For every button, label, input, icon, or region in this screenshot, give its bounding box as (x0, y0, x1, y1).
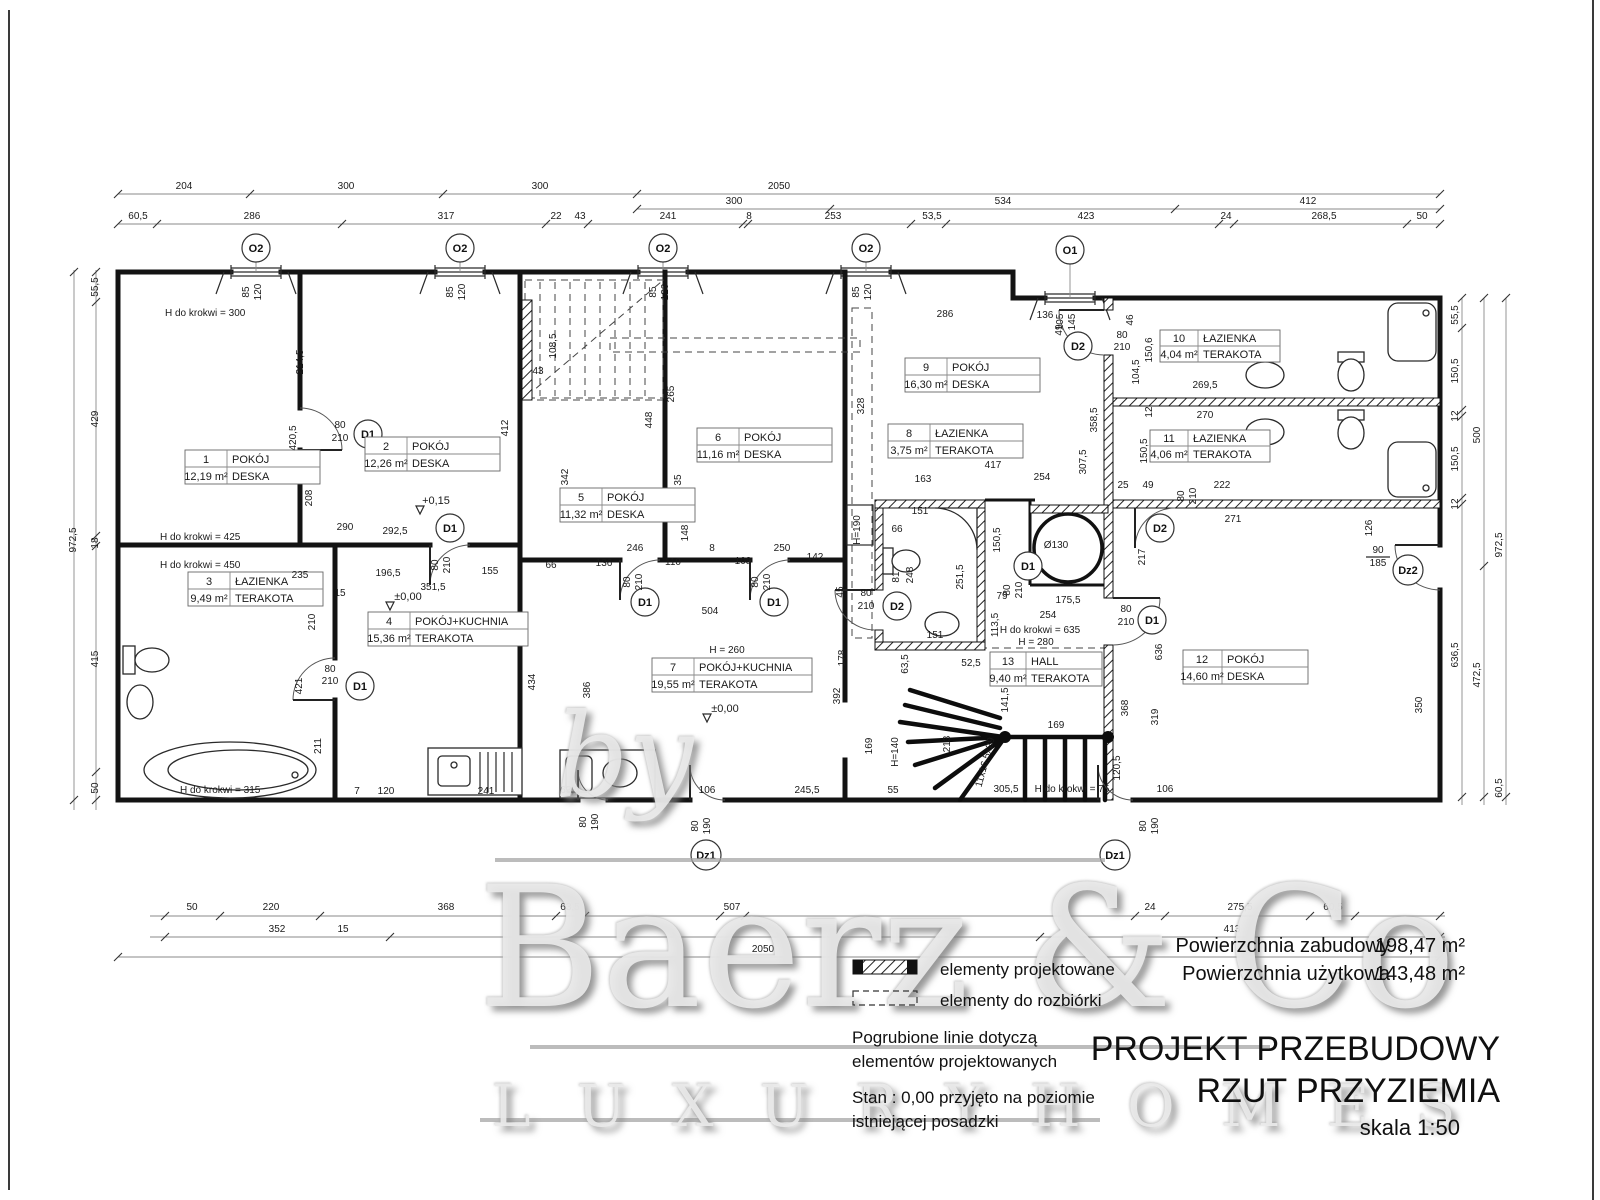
room-label-6: 6 POKÓJ 11,16 m² DESKA (697, 428, 832, 462)
room-floor: TERAKOTA (1031, 673, 1090, 685)
room-label-13: 13 HALL 9,40 m² TERAKOTA (989, 652, 1102, 686)
dim-label: 290 (337, 522, 354, 533)
dim-label: 142 (807, 552, 824, 563)
door-dz1: Dz1 80 190 (690, 765, 725, 870)
door-size: 80 (1138, 820, 1149, 832)
sink (1246, 362, 1284, 388)
dim-label: 136 (596, 558, 613, 569)
dim-label: 8 (709, 543, 715, 554)
dim-label: 448 (644, 411, 655, 428)
door-size: 210 (322, 676, 339, 687)
window-size: 85 (851, 286, 862, 298)
dim-label: 214,5 (295, 349, 306, 374)
interior-dimensions: H do krokwi = 300 214,5 420,5 208 290 H … (160, 308, 1425, 797)
dim-label: 220 (263, 902, 280, 913)
dim-label: 106 (699, 785, 716, 796)
room-floor: TERAKOTA (935, 445, 994, 457)
room-num: 12 (1196, 654, 1208, 666)
room-num: 7 (670, 662, 676, 674)
room-name: ŁAZIENKA (935, 428, 989, 440)
dim-label: 235 (292, 570, 309, 581)
room-num: 10 (1173, 333, 1185, 345)
room-num: 13 (1002, 656, 1014, 668)
room-label-12: 12 POKÓJ 14,60 m² DESKA (1180, 650, 1308, 684)
dim-label: 412 (500, 419, 511, 436)
toilet (123, 646, 169, 674)
dim-label: H do krokwi = 635 (1000, 625, 1081, 636)
dim-label: 420,5 (288, 425, 299, 450)
dim-label: 55,5 (90, 277, 101, 297)
dim-label: 251,5 (955, 564, 966, 589)
door-tag: D1 (1145, 615, 1159, 627)
dim-label: 18 (90, 537, 101, 549)
room-area: 4,06 m² (1150, 449, 1188, 461)
legend-note-level-1: Stan : 0,00 przyjęto na poziomie (852, 1088, 1095, 1108)
door-tag: D1 (353, 681, 367, 693)
dim-label: 15 (334, 588, 346, 599)
dim-label: 254 (1034, 472, 1051, 483)
dim-label: 246 (627, 543, 644, 554)
dim-label: 60,5 (1323, 902, 1343, 913)
dim-label: 421 (294, 677, 305, 694)
shower (1388, 303, 1436, 361)
door-dz2: Dz2 90 185 (1366, 545, 1440, 590)
dim-label: 300 (726, 196, 743, 207)
legend-symbols (850, 955, 930, 1015)
toilet (1338, 352, 1364, 391)
dim-label: 241 (478, 786, 495, 797)
room-floor: DESKA (744, 449, 782, 461)
dim-label: 208 (304, 489, 315, 506)
project-title-line2: RZUT PRZYZIEMIA (1060, 1072, 1500, 1111)
dim-label: 126 (1364, 519, 1375, 536)
window-o2-4: O2 85 120 (826, 234, 906, 300)
dim-label: 53,5 (922, 211, 942, 222)
dim-label: 417 (985, 460, 1002, 471)
dim-label: 66 (545, 560, 557, 571)
room-area: 12,19 m² (184, 471, 228, 483)
door-d1: D1 80 210 (1113, 598, 1166, 645)
room-floor: DESKA (232, 471, 270, 483)
door-tag: D2 (890, 601, 904, 613)
dim-label: 148 (680, 524, 691, 541)
room-label-8: 8 ŁAZIENKA 3,75 m² TERAKOTA (888, 424, 1023, 458)
dim-label: H do krokwi = 450 (160, 560, 241, 571)
dim-label: 141,5 (1000, 687, 1011, 712)
dim-label: 507 (724, 902, 741, 913)
room-area: 11,32 m² (560, 509, 603, 521)
toilet (1338, 410, 1364, 449)
door-size: 210 (332, 433, 349, 444)
door-tag: Dz1 (1105, 850, 1125, 862)
room-name: HALL (1031, 656, 1059, 668)
room-name: POKÓJ (952, 361, 989, 374)
dim-label: 155 (482, 566, 499, 577)
dim-label: H do krokwi = 315 (180, 785, 261, 796)
level-label: ±0,00 (711, 703, 738, 715)
room-area: 15,36 m² (367, 633, 411, 645)
dim-label: 108 (735, 556, 752, 567)
legend-note-bold-lines-2: elementów projektowanych (852, 1052, 1057, 1072)
door-d1: D1 80 210 (750, 560, 790, 616)
door-d1: D1 80 210 (1002, 552, 1042, 598)
door-size: 190 (1150, 817, 1161, 834)
door-d1: D1 80 210 (620, 560, 660, 616)
dim-label: 55,5 (1450, 305, 1461, 325)
dim-label: 307,5 (1078, 449, 1089, 474)
dim-label: 350 (1414, 696, 1425, 713)
room-name: ŁAZIENKA (1203, 333, 1257, 345)
room-label-7: 7 POKÓJ+KUCHNIA 19,55 m² TERAKOTA (651, 658, 812, 692)
dim-label: 52,5 (961, 658, 981, 669)
window-tag: O2 (656, 243, 671, 255)
window-o2-1: O2 85 120 (216, 234, 296, 300)
room-area: 3,75 m² (890, 445, 928, 457)
dim-label: 386 (582, 681, 593, 698)
room-area: 11,16 m² (697, 449, 740, 461)
dim-label: 169 (1048, 720, 1065, 731)
scale-label: skala 1:50 (1200, 1115, 1460, 1141)
window-tag: O2 (249, 243, 264, 255)
window-size: 85 (445, 286, 456, 298)
dim-label: 150,6 (1144, 337, 1155, 362)
door-size: 210 (1188, 487, 1199, 504)
dim-label: 434 (527, 673, 538, 690)
dim-label: 24 (1220, 211, 1232, 222)
dim-label: 63,5 (560, 902, 580, 913)
room-floor: DESKA (607, 509, 645, 521)
door-size: 80 (622, 576, 633, 588)
door-size: 90 (1372, 545, 1384, 556)
room-name: POKÓJ (412, 440, 449, 453)
window-size: 120 (863, 283, 874, 300)
room-name: ŁAZIENKA (1193, 433, 1247, 445)
dim-label: H=190 (852, 515, 863, 545)
room-label-9: 9 POKÓJ 16,30 m² DESKA (904, 358, 1040, 392)
room-label-2: 2 POKÓJ 12,26 m² DESKA (364, 437, 500, 471)
dim-label: 222 (1214, 480, 1231, 491)
sheet-edge-left (8, 10, 10, 1190)
dim-label: 500 (1472, 426, 1483, 443)
room-label-5: 5 POKÓJ 11,32 m² DESKA (560, 488, 695, 522)
dim-label: 15 (337, 924, 349, 935)
door-size: 185 (1370, 558, 1387, 569)
dim-label: 24 (1144, 902, 1156, 913)
door-tag: D2 (1153, 523, 1167, 535)
dim-label: 104,5 (1131, 359, 1142, 384)
room-floor: TERAKOTA (415, 633, 474, 645)
dim-label: 12 (1144, 406, 1155, 418)
room-num: 6 (715, 432, 721, 444)
door-d2: D2 80 210 (1135, 487, 1199, 548)
dim-label: 211 (313, 738, 324, 754)
dim-label: 254 (1040, 610, 1057, 621)
dim-label: 972,5 (1494, 532, 1505, 557)
dim-label: 50 (186, 902, 198, 913)
dim-label: 319 (1150, 708, 1161, 725)
door-size: 80 (334, 420, 346, 431)
dim-label: 292,5 (382, 526, 407, 537)
dim-label: 12 (1450, 410, 1461, 422)
dim-label: 275,5 (1227, 902, 1252, 913)
dim-label: 169 (864, 737, 875, 754)
legend-symbol-cap (907, 960, 917, 974)
dim-label: 49 (1142, 480, 1154, 491)
door-size: 190 (702, 817, 713, 834)
dim-label: 342 (560, 468, 571, 485)
dim-label: 110 (665, 557, 681, 568)
area-usable-value: 143,48 m² (1330, 963, 1465, 986)
room-floor: TERAKOTA (1203, 349, 1262, 361)
room-name: POKÓJ+KUCHNIA (699, 661, 793, 674)
dim-label: 150,5 (1450, 446, 1461, 471)
dim-label: 63,5 (900, 654, 911, 674)
dim-label: 300 (532, 181, 549, 192)
room-name: POKÓJ (607, 491, 644, 504)
dim-label: 412 (1300, 196, 1317, 207)
kitchen-counter (428, 748, 522, 795)
door-d1: D1 80 210 (293, 658, 374, 700)
dim-label: 150,5 (1139, 438, 1150, 463)
room-floor: DESKA (952, 379, 990, 391)
window-size: 120 (253, 283, 264, 300)
dim-label: 7 (354, 786, 360, 797)
room-name: POKÓJ (744, 431, 781, 444)
dim-label: Ø130 (1044, 540, 1069, 551)
dim-label: H do krokwi = 300 (165, 308, 246, 319)
dim-label: 35 (673, 474, 684, 486)
door-tag: Dz1 (696, 850, 716, 862)
door-size: 210 (634, 573, 645, 590)
dim-label: 12 (1450, 498, 1461, 510)
door-size: 190 (590, 813, 601, 830)
door-tag: Dz2 (1398, 565, 1418, 577)
room-area: 9,40 m² (989, 673, 1027, 685)
window-o2-2: O2 85 120 (420, 234, 500, 300)
room-floor: DESKA (412, 458, 450, 470)
dim-label: 150,5 (1450, 358, 1461, 383)
door-size: 210 (1118, 617, 1135, 628)
door-d1: D1 80 210 (430, 514, 470, 585)
room-area: 4,04 m² (1160, 349, 1198, 361)
dim-label: 46 (1125, 314, 1136, 326)
dim-label: H = 280 (1018, 637, 1054, 648)
sink (127, 685, 153, 719)
room-label-4: 4 POKÓJ+KUCHNIA 15,36 m² TERAKOTA (367, 612, 528, 646)
door-size: 80 (578, 816, 589, 828)
room-area: 12,26 m² (364, 458, 408, 470)
dim-label: 108,5 (548, 333, 559, 358)
dim-label: 210 (307, 613, 318, 630)
door-size: 80 (324, 664, 336, 675)
room-num: 8 (906, 428, 912, 440)
dim-label: 151 (927, 630, 944, 641)
dim-label: 60,5 (1494, 778, 1505, 798)
dim-label: 8 (746, 211, 752, 222)
room-num: 4 (386, 616, 392, 628)
room-label-11: 11 ŁAZIENKA 4,06 m² TERAKOTA (1150, 430, 1270, 462)
room-floor: TERAKOTA (699, 679, 758, 691)
legend-symbol-cap (853, 960, 863, 974)
dim-label: 2050 (752, 944, 775, 955)
door-size: 210 (858, 601, 875, 612)
dim-label: 150,5 (992, 527, 1003, 552)
dim-label: 317 (438, 211, 455, 222)
dim-label: 43 (532, 366, 544, 377)
room-num: 9 (923, 362, 929, 374)
dim-label: 472,5 (1472, 662, 1483, 687)
dim-label: 175,5 (1055, 595, 1080, 606)
dim-label: 423 (1078, 211, 1095, 222)
room-num: 1 (203, 454, 209, 466)
dim-label: 972,5 (68, 527, 79, 552)
door-size: 80 (690, 820, 701, 832)
room-name: POKÓJ+KUCHNIA (415, 615, 509, 628)
room-num: 5 (578, 492, 584, 504)
dim-label: 504 (702, 606, 719, 617)
dim-label: 151 (912, 506, 929, 517)
dim-label: 49 (1054, 324, 1065, 336)
window-tag: O2 (859, 243, 874, 255)
room-floor: TERAKOTA (235, 593, 294, 605)
dim-label: 45 (835, 586, 846, 598)
dim-label: 368 (438, 902, 455, 913)
dim-label: 217 (1137, 548, 1148, 565)
dim-label: 413 (1224, 924, 1241, 935)
door-tag: D1 (767, 597, 781, 609)
dim-label: 328 (856, 397, 867, 414)
room-floor: DESKA (1227, 671, 1265, 683)
dim-label: 253 (825, 211, 842, 222)
dim-label: 270 (1197, 410, 1214, 421)
dim-label: 300 (338, 181, 355, 192)
dim-label: 245,5 (794, 785, 819, 796)
dim-label: 286 (937, 309, 954, 320)
floor-plan-sheet: 204 300 300 2050 300 534 412 60,5 286 31… (0, 0, 1600, 1200)
door-size: 80 (1176, 490, 1187, 502)
dim-label: 55 (887, 785, 899, 796)
dim-label: 178 (837, 649, 848, 666)
room-label-10: 10 ŁAZIENKA 4,04 m² TERAKOTA (1160, 330, 1280, 362)
dim-label: 63,5 (560, 785, 580, 796)
dim-label: 429 (90, 410, 101, 427)
door-size: 80 (860, 588, 872, 599)
dim-label: 392 (832, 687, 843, 704)
door-size: 210 (1014, 581, 1025, 598)
dim-label: H=140 (890, 737, 901, 767)
area-built-value: 198,47 m² (1330, 935, 1465, 958)
room-name: POKÓJ (1227, 653, 1264, 666)
door-size: 210 (442, 556, 453, 573)
dim-label: 241 (660, 211, 677, 222)
window-tag: O1 (1063, 245, 1078, 257)
legend-item-projected: elementy projektowane (940, 960, 1115, 980)
dim-label: 79 (996, 591, 1008, 602)
dim-label: 351,5 (420, 582, 445, 593)
dim-label: 50 (90, 782, 101, 794)
dim-label: 271 (1225, 514, 1242, 525)
floor-plan-drawing: 204 300 300 2050 300 534 412 60,5 286 31… (0, 0, 1600, 1200)
dim-label: H do krokwi = 425 (160, 532, 241, 543)
window-size: 145 (1067, 313, 1078, 330)
window-size: 120 (457, 283, 468, 300)
dim-label: 43 (574, 211, 586, 222)
shower (1388, 442, 1436, 497)
dim-label: 352 (269, 924, 286, 935)
door-size: 210 (1114, 342, 1131, 353)
dim-label: 163 (915, 474, 932, 485)
window-size: 85 (241, 286, 252, 298)
door-tag: D1 (1021, 561, 1035, 573)
dim-label: 50 (1416, 211, 1428, 222)
dim-label: 22 (550, 211, 562, 222)
dim-label: 269,5 (1192, 380, 1217, 391)
dim-label: 120 (378, 786, 395, 797)
dim-label: H = 260 (709, 645, 745, 656)
dim-label: 60,5 (128, 211, 148, 222)
room-floor: TERAKOTA (1193, 449, 1252, 461)
dim-label: 250 (774, 543, 791, 554)
door-size: 80 (430, 559, 441, 571)
legend-note-bold-lines-1: Pogrubione linie dotyczą (852, 1028, 1037, 1048)
room-label-1: 1 POKÓJ 12,19 m² DESKA (184, 450, 320, 484)
project-title-line1: PROJEKT PRZEBUDOWY (1060, 1030, 1500, 1069)
dim-label: 265 (666, 385, 677, 402)
dim-label: 248 (905, 566, 916, 583)
room-name: ŁAZIENKA (235, 576, 289, 588)
dim-label: 2050 (768, 181, 791, 192)
room-num: 11 (1163, 433, 1174, 445)
dim-label: 368 (1120, 699, 1131, 716)
room-num: 3 (206, 576, 212, 588)
dim-label: 636 (1154, 643, 1165, 660)
dim-label: H do krokwi = 75 (1035, 784, 1110, 795)
level-label: +0,15 (422, 495, 450, 507)
door-tag: D1 (638, 597, 652, 609)
room-num: 2 (383, 441, 389, 453)
legend-note-level-2: istniejącej posadzki (852, 1112, 998, 1132)
room-area: 19,55 m² (651, 679, 695, 691)
dim-label: 66 (891, 524, 903, 535)
dim-label: 636,5 (1450, 642, 1461, 667)
room-area: 14,60 m² (1180, 671, 1224, 683)
sheet-edge-right (1592, 0, 1594, 1200)
dim-label: 213 (942, 735, 953, 752)
level-label: ±0,00 (394, 591, 421, 603)
dim-label: 305,5 (993, 784, 1018, 795)
dim-label: 286 (244, 211, 261, 222)
room-name: POKÓJ (232, 453, 269, 466)
room-area: 9,49 m² (190, 593, 228, 605)
dim-label: 534 (995, 196, 1012, 207)
dim-label: 415 (90, 650, 101, 667)
room-area: 16,30 m² (904, 379, 948, 391)
door-tag: D2 (1071, 341, 1085, 353)
door-size: 80 (750, 576, 761, 588)
dim-label: 268,5 (1311, 211, 1336, 222)
dim-label: 136 (1037, 310, 1054, 321)
legend-symbol-demolition (853, 991, 917, 1005)
dim-label: 204 (176, 181, 193, 192)
door-size: 80 (1120, 604, 1132, 615)
door-tag: D1 (443, 523, 457, 535)
door-size: 210 (762, 573, 773, 590)
dim-label: 120,5 (1112, 755, 1123, 780)
door-size: 80 (1116, 330, 1128, 341)
dim-label: 196,5 (375, 568, 400, 579)
legend-item-demolition: elementy do rozbiórki (940, 991, 1102, 1011)
dim-label: 106 (1157, 784, 1174, 795)
